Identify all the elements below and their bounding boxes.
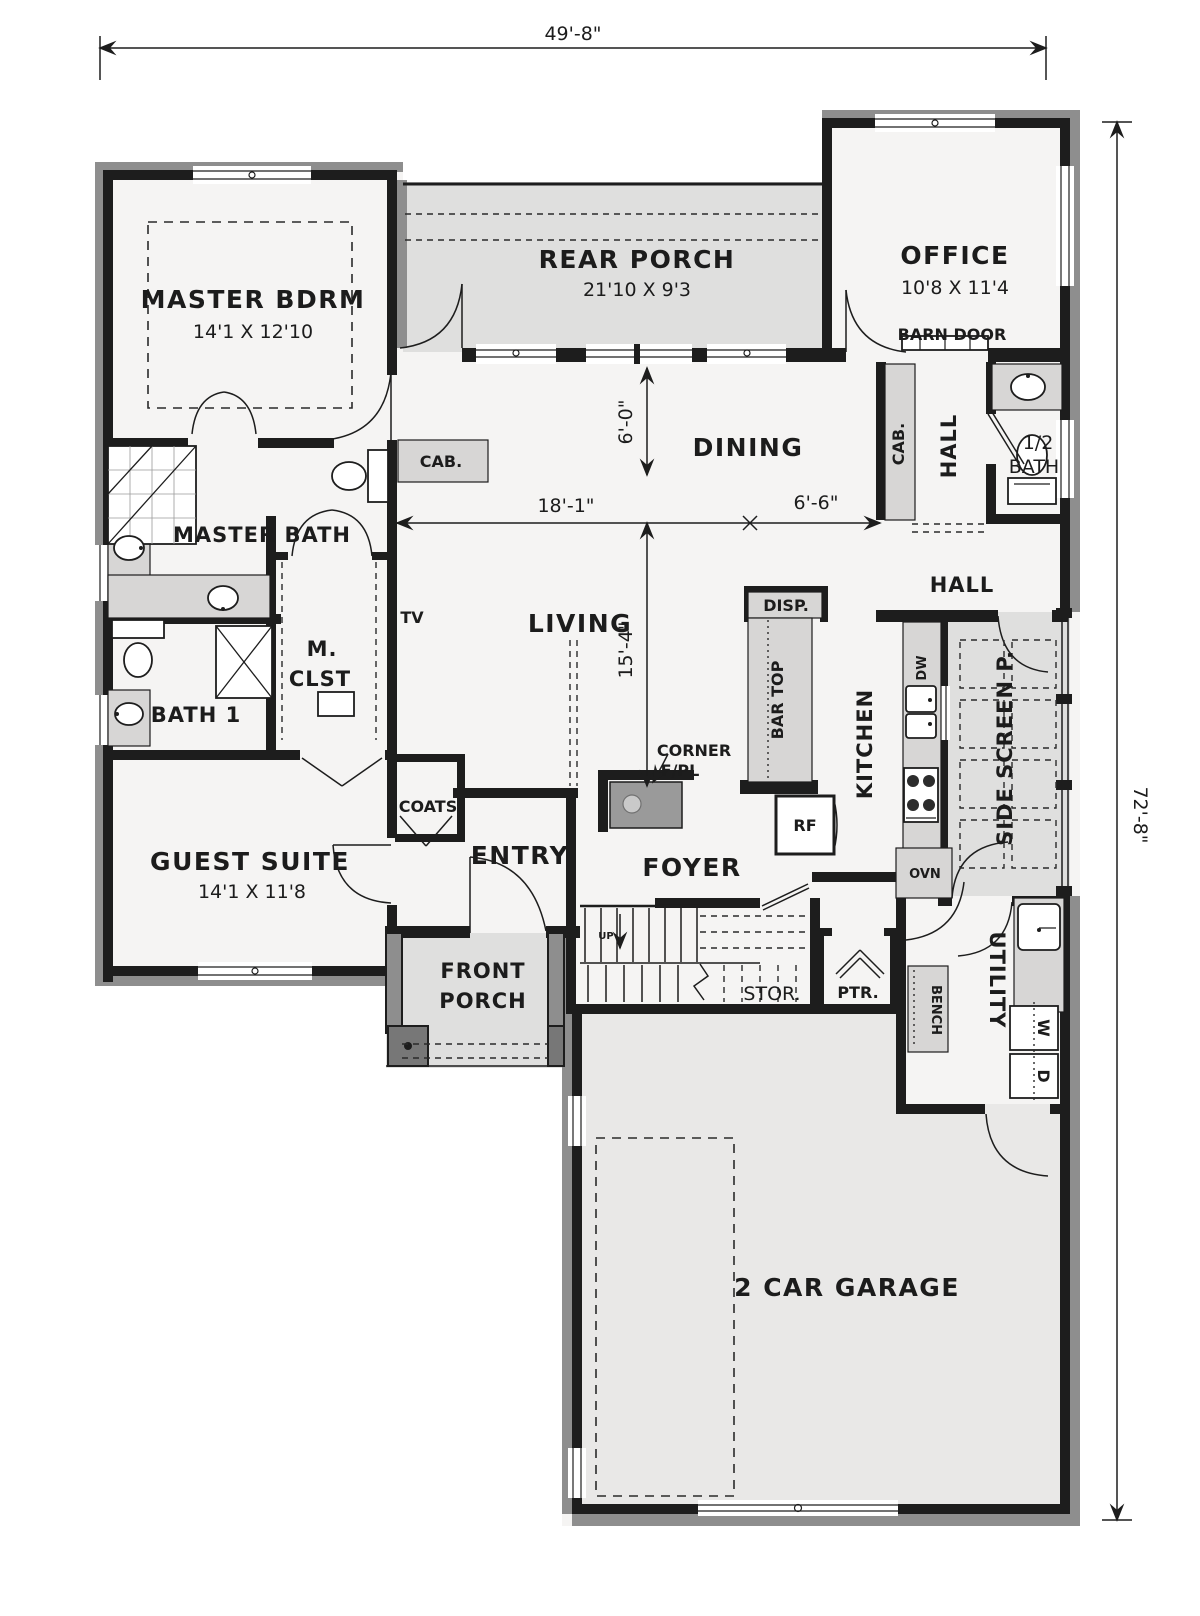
room-label-master-bdrm: MASTER BDRM — [141, 285, 366, 314]
callout-tv: TV — [400, 608, 424, 627]
callout-cab-hall: CAB. — [889, 423, 908, 465]
callout-up: UP — [598, 931, 613, 942]
room-label-side-screen-porch: SIDE SCREEN P. — [993, 650, 1017, 846]
callout-dryer: D — [1034, 1069, 1053, 1082]
room-label-front-porch-1: FRONT — [440, 959, 525, 983]
window-garage-left-2 — [568, 1448, 586, 1498]
dim-dining-width: 6'-6" — [794, 492, 839, 514]
room-label-master-bath: MASTER BATH — [173, 523, 351, 547]
window-dining-back-2 — [707, 344, 786, 364]
callout-disp: DISP. — [763, 596, 809, 615]
room-size-guest-suite: 14'1 X 11'8 — [198, 881, 306, 903]
room-label-m-clst-2: CLST — [289, 667, 351, 691]
bath1-shower — [216, 626, 272, 698]
callout-coats: COATS — [399, 797, 458, 816]
room-label-hall-back: HALL — [937, 414, 961, 479]
callout-corner-fpl-2: F/PL — [661, 761, 700, 780]
window-office-top — [875, 114, 995, 132]
room-size-master-bdrm: 14'1 X 12'10 — [193, 321, 313, 343]
fireplace — [610, 782, 682, 828]
room-label-half-bath-1: 1/2 — [1023, 432, 1054, 454]
window-garage-left-1 — [568, 1096, 586, 1146]
room-label-garage: 2 CAR GARAGE — [734, 1273, 960, 1302]
room-label-rear-porch: REAR PORCH — [539, 245, 736, 274]
room-label-pantry: PTR. — [837, 983, 878, 1002]
room-label-storage: STOR. — [743, 983, 800, 1005]
kitchen-sink — [906, 686, 936, 738]
callout-bar-top: BAR TOP — [768, 660, 787, 739]
room-label-m-clst-1: M. — [307, 637, 338, 661]
dim-overall-height: 72'-8" — [1129, 786, 1151, 843]
dim-overall-width: 49'-8" — [544, 23, 601, 45]
room-size-rear-porch: 21'10 X 9'3 — [583, 279, 691, 301]
callout-washer: W — [1034, 1019, 1053, 1037]
window-office-right — [1056, 166, 1074, 286]
room-label-kitchen: KITCHEN — [853, 689, 877, 799]
master-sink-2 — [208, 586, 238, 610]
utility-sink — [1018, 904, 1060, 950]
callout-oven: OVN — [909, 867, 941, 882]
room-label-hall-side: HALL — [930, 573, 995, 597]
window-master-top — [193, 166, 311, 184]
room-label-front-porch-2: PORCH — [439, 989, 526, 1013]
room-label-living: LIVING — [528, 609, 632, 638]
room-label-bath1: BATH 1 — [151, 703, 241, 727]
room-size-office: 10'8 X 11'4 — [901, 277, 1009, 299]
bath1-sink — [115, 703, 143, 725]
closet-drawers — [318, 692, 354, 716]
window-guest-bottom — [198, 962, 312, 980]
callout-cab-living: CAB. — [420, 452, 462, 471]
window-garage-bottom — [698, 1500, 898, 1516]
dim-dining-depth: 6'-0" — [615, 400, 637, 445]
callout-barn-door: BARN DOOR — [898, 325, 1007, 344]
room-label-utility: UTILITY — [985, 932, 1009, 1029]
dim-living-width: 18'-1" — [537, 495, 594, 517]
floor-plan-svg: 49'-8" 72'-8" 6'-0" 18'-1" 6'-6" 15'-4" … — [0, 0, 1200, 1611]
window-dining-back — [586, 344, 692, 364]
room-label-foyer: FOYER — [642, 853, 741, 882]
callout-bench: BENCH — [928, 985, 943, 1035]
room-label-office: OFFICE — [900, 241, 1009, 270]
room-label-dining: DINING — [693, 433, 804, 462]
window-living-back-1 — [476, 344, 556, 364]
kitchen-range — [904, 768, 938, 822]
room-label-half-bath-2: BATH — [1009, 456, 1059, 478]
callout-dishwasher: DW — [915, 655, 930, 680]
room-label-entry: ENTRY — [471, 841, 570, 870]
callout-fridge: RF — [793, 816, 816, 835]
floor-plan-page: 49'-8" 72'-8" 6'-0" 18'-1" 6'-6" 15'-4" … — [0, 0, 1200, 1611]
room-label-guest-suite: GUEST SUITE — [150, 847, 350, 876]
callout-corner-fpl-1: CORNER — [657, 741, 731, 760]
